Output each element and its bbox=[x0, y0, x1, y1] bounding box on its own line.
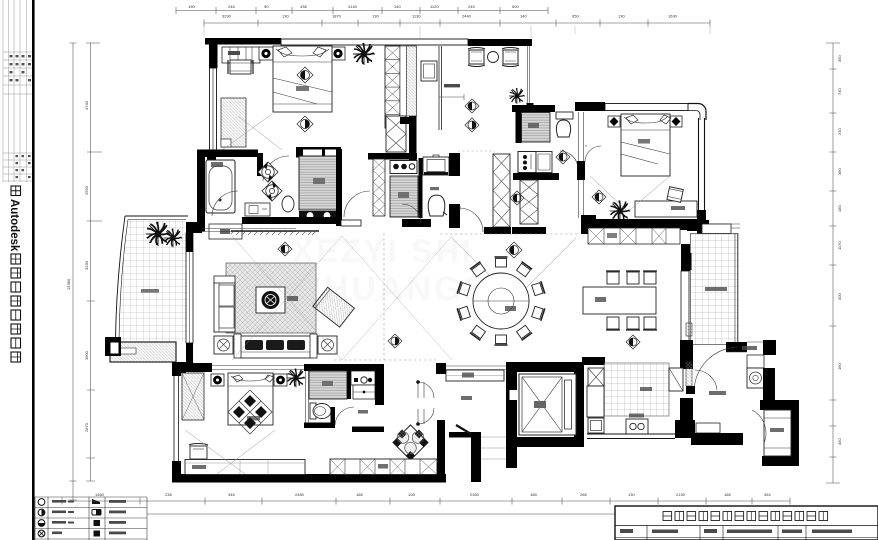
svg-text:180: 180 bbox=[837, 205, 842, 212]
svg-text:438: 438 bbox=[300, 4, 307, 9]
svg-text:1870: 1870 bbox=[332, 14, 342, 19]
svg-text:3600: 3600 bbox=[84, 350, 89, 360]
svg-text:450: 450 bbox=[837, 438, 842, 445]
svg-text:2550: 2550 bbox=[84, 185, 89, 195]
svg-text:140: 140 bbox=[394, 4, 401, 9]
svg-text:130: 130 bbox=[372, 14, 379, 19]
svg-text:1120: 1120 bbox=[430, 4, 439, 9]
svg-text:168: 168 bbox=[356, 492, 363, 497]
svg-text:15380: 15380 bbox=[66, 278, 71, 290]
svg-text:168: 168 bbox=[530, 492, 537, 497]
svg-text:238: 238 bbox=[165, 492, 172, 497]
svg-text:1630: 1630 bbox=[668, 14, 678, 19]
svg-text:160: 160 bbox=[837, 363, 842, 370]
svg-text:246: 246 bbox=[228, 4, 235, 9]
svg-text:XEZYI SHI: XEZYI SHI bbox=[292, 233, 474, 269]
svg-text:2440: 2440 bbox=[462, 14, 472, 19]
svg-text:2130: 2130 bbox=[676, 492, 686, 497]
svg-text:130: 130 bbox=[618, 14, 625, 19]
svg-text:950: 950 bbox=[572, 14, 579, 19]
svg-text:140: 140 bbox=[520, 14, 527, 19]
svg-text:190: 190 bbox=[188, 4, 195, 9]
svg-text:300: 300 bbox=[837, 293, 842, 300]
svg-text:1170: 1170 bbox=[837, 241, 842, 250]
svg-text:168: 168 bbox=[724, 492, 731, 497]
svg-text:454: 454 bbox=[764, 492, 771, 497]
svg-text:268: 268 bbox=[580, 492, 587, 497]
svg-text:4140: 4140 bbox=[348, 4, 358, 9]
svg-text:Autodesk: Autodesk bbox=[8, 199, 20, 252]
svg-text:2350: 2350 bbox=[470, 492, 480, 497]
svg-text:130: 130 bbox=[628, 492, 635, 497]
svg-text:1460: 1460 bbox=[95, 492, 105, 497]
svg-text:90: 90 bbox=[264, 4, 269, 9]
svg-text:245: 245 bbox=[468, 4, 475, 9]
svg-text:2480: 2480 bbox=[295, 492, 305, 497]
svg-text:350: 350 bbox=[837, 55, 842, 62]
svg-text:3290: 3290 bbox=[222, 14, 232, 19]
svg-text:380: 380 bbox=[837, 168, 842, 175]
svg-text:3290: 3290 bbox=[84, 260, 89, 270]
svg-text:108: 108 bbox=[408, 492, 415, 497]
svg-text:4740: 4740 bbox=[84, 100, 89, 110]
svg-text:348: 348 bbox=[228, 492, 235, 497]
svg-text:210: 210 bbox=[837, 128, 842, 135]
svg-text:130: 130 bbox=[282, 14, 289, 19]
svg-text:2870: 2870 bbox=[84, 422, 89, 432]
svg-text:1130: 1130 bbox=[412, 14, 421, 19]
svg-text:740: 740 bbox=[837, 88, 842, 95]
svg-text:500: 500 bbox=[512, 4, 519, 9]
